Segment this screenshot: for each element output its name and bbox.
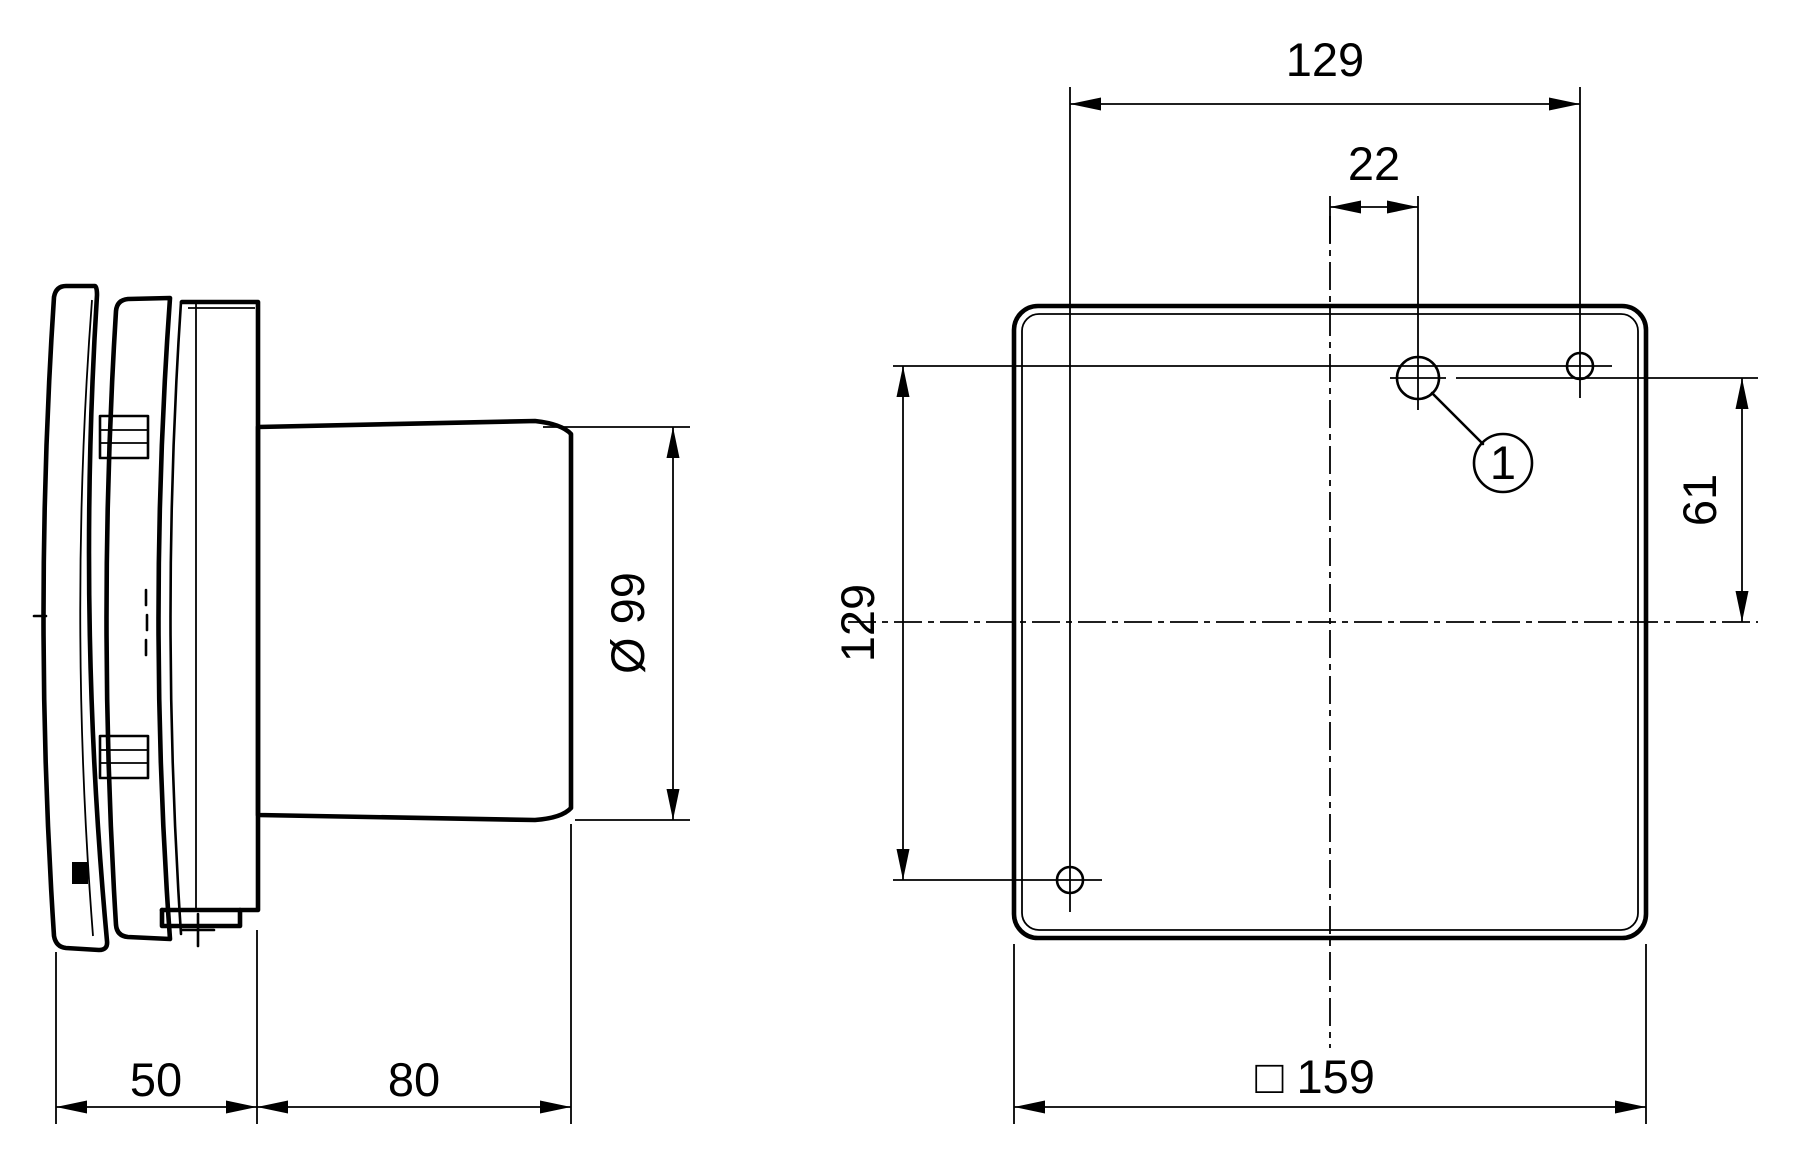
front-view: 1 129 22 129	[831, 33, 1758, 1124]
side-view: 50 80 Ø 99	[34, 286, 690, 1124]
dim-duct-diameter-label: Ø 99	[601, 572, 654, 674]
housing-face-arc	[171, 302, 182, 934]
front-cover-outline	[44, 286, 108, 950]
cover-switch-detail	[72, 862, 88, 884]
callout-leader-line	[1432, 393, 1483, 444]
fan-dimension-drawing: 50 80 Ø 99	[0, 0, 1805, 1176]
dim-panel-size-label: □ 159	[1255, 1050, 1375, 1103]
dim-duct-length: 80	[257, 824, 571, 1124]
inner-panel-outline	[107, 298, 171, 939]
dim-duct-length-label: 80	[388, 1053, 440, 1106]
callout-label: 1	[1490, 436, 1516, 489]
dim-duct-diameter: Ø 99	[543, 427, 690, 820]
dim-hole-span-vertical-label: 129	[831, 584, 884, 662]
technical-drawing-page: 50 80 Ø 99	[0, 0, 1805, 1176]
dim-hole-offset-from-center-label: 22	[1348, 137, 1400, 190]
embossed-logo-marks	[146, 590, 147, 655]
dim-hole-offset-from-center: 22	[1330, 137, 1418, 410]
callout-1: 1	[1432, 393, 1532, 492]
housing-foot	[162, 910, 240, 926]
bottom-center-mark	[182, 914, 214, 946]
dim-front-depth-label: 50	[130, 1053, 182, 1106]
dim-hole-span-horizontal-label: 129	[1286, 33, 1364, 86]
dim-front-depth: 50	[56, 930, 257, 1124]
duct-outline	[258, 421, 571, 820]
dim-hole-offset-above-center-label: 61	[1673, 474, 1726, 526]
dim-hole-offset-above-center: 61	[1456, 378, 1758, 622]
